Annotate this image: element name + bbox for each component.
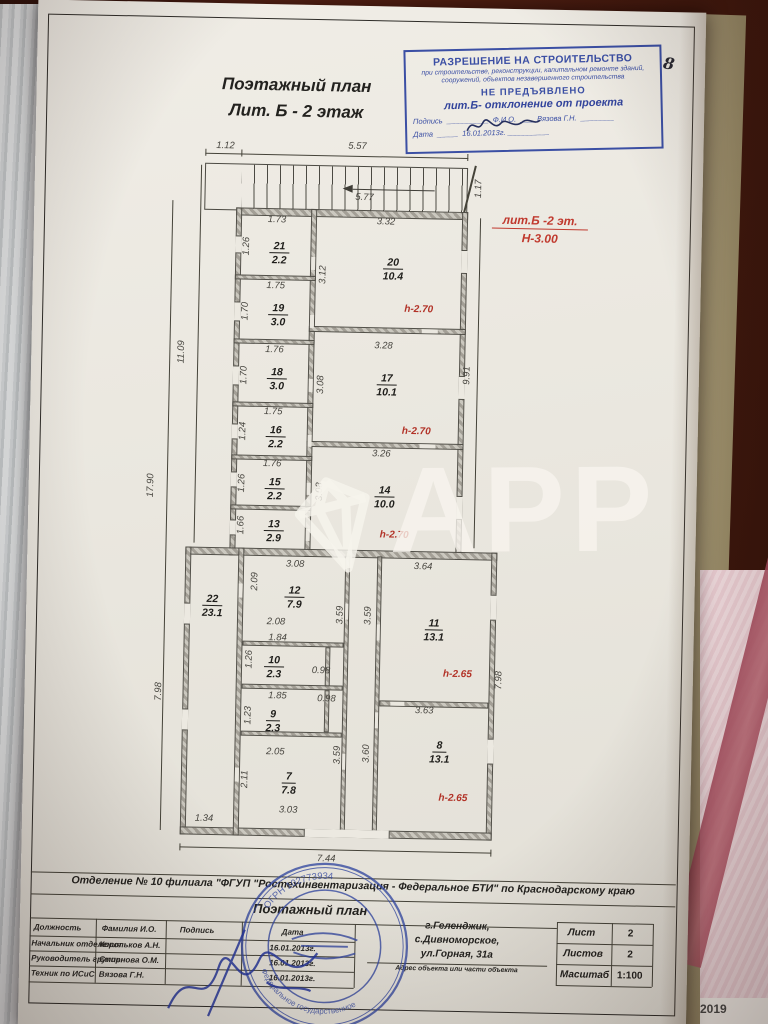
- room-number: 10: [264, 654, 284, 667]
- dim-label: 5.57: [317, 140, 397, 153]
- dim-label: 7.98: [153, 671, 165, 711]
- column-header-position: Должность: [34, 922, 82, 932]
- dim-label: 1.12: [205, 140, 245, 152]
- page-title: Поэтажный план Лит. Б - 2 этаж: [176, 70, 417, 126]
- dim-label: 1.24: [237, 411, 249, 451]
- blank: ________: [579, 113, 615, 123]
- room-area: 3.0: [255, 380, 299, 393]
- sheets-label: Листов: [563, 948, 603, 960]
- litera-height-note: лит.Б -2 эт. Н-3.00: [492, 213, 589, 247]
- room-area: 2.3: [252, 668, 296, 681]
- door-opening: [307, 483, 311, 495]
- room-label-14: 14 10.0: [362, 480, 407, 511]
- dim-label: 3.26: [361, 448, 401, 460]
- dim-label: 11.09: [175, 332, 187, 372]
- scale-label: Масштаб: [560, 969, 609, 981]
- room-number: 18: [267, 366, 287, 379]
- room-height-label: h-2.70: [402, 426, 431, 438]
- stamp-date-label: Дата: [413, 130, 433, 139]
- room-label-8: 8 13.1: [417, 735, 462, 766]
- pink-certificate-page: 2019: [700, 570, 768, 1024]
- door-opening: [422, 329, 438, 333]
- signature-tail: [267, 982, 311, 991]
- room-area: 7.8: [266, 785, 310, 798]
- room-area: 3.0: [256, 316, 300, 329]
- dim-label: 3.32: [366, 216, 406, 228]
- room-area: 10.0: [362, 498, 406, 511]
- dim-label: 1.70: [239, 291, 251, 331]
- handwritten-signature: [148, 920, 340, 1024]
- signature-strokes: [168, 928, 318, 1018]
- dim-label: 1.70: [238, 355, 250, 395]
- door-opening: [310, 315, 314, 328]
- door-opening: [419, 444, 435, 448]
- room-number: 20: [383, 256, 403, 269]
- dim-label: 9.91: [461, 355, 473, 395]
- sheets-value: 2: [627, 949, 633, 960]
- window: [490, 595, 497, 621]
- dim-label: 0.98: [306, 693, 346, 705]
- dim-label: 1.26: [241, 226, 253, 266]
- room-height-label: h-2.65: [443, 669, 472, 681]
- dim-label: 3.08: [275, 558, 315, 570]
- dim-label: 3.59: [331, 735, 343, 775]
- dim-label: 3.59: [334, 595, 346, 635]
- door-opening: [238, 584, 242, 598]
- room-area: 13.1: [412, 631, 456, 644]
- room-number: 11: [424, 617, 443, 630]
- door-opening: [377, 624, 380, 640]
- room-label-9: 9 2.3: [251, 704, 296, 735]
- dim-label: 2.05: [255, 746, 295, 758]
- door-opening: [311, 257, 315, 270]
- room-label-21: 21 2.2: [257, 236, 302, 267]
- room-height-label: h-2.70: [404, 304, 433, 316]
- window: [304, 829, 390, 839]
- window: [487, 739, 494, 765]
- dim-label: 1.34: [184, 812, 224, 824]
- dim-label: 3.08: [315, 365, 327, 405]
- dim-label: 1.73: [257, 214, 297, 226]
- window: [461, 250, 467, 274]
- room-area: 10.1: [364, 386, 408, 399]
- door-opening: [390, 702, 404, 706]
- dim-label: 7.98: [493, 660, 505, 700]
- dim-tick: [467, 154, 468, 161]
- dim-label: 3.08: [314, 472, 326, 512]
- room-number: 14: [375, 484, 395, 497]
- room-label-20: 20 10.4: [371, 252, 416, 283]
- room-label-15: 15 2.2: [252, 472, 297, 503]
- certificate-footer: 2019: [700, 998, 768, 1024]
- dim-label: 17.90: [145, 465, 157, 505]
- window: [182, 708, 188, 730]
- room-height-label: h-2.65: [438, 793, 467, 805]
- room-area: 2.2: [257, 254, 301, 267]
- room-number: 16: [266, 424, 286, 437]
- room-label-10: 10 2.3: [252, 650, 297, 681]
- room-label-11: 11 13.1: [412, 613, 457, 644]
- stamp-signature: [463, 113, 543, 137]
- room-label-22: 22 23.1: [190, 589, 235, 620]
- dim-label: 1.76: [252, 458, 292, 470]
- dim-label: 1.26: [236, 463, 248, 503]
- room-area: 23.1: [190, 607, 234, 620]
- dim-label: 2.08: [256, 616, 296, 628]
- dim-label: 1.85: [257, 690, 297, 702]
- room-area: 13.1: [417, 754, 461, 767]
- room-label-7: 7 7.8: [266, 766, 311, 797]
- dim-label: 3.63: [404, 705, 444, 717]
- room-label-13: 13 2.9: [252, 514, 297, 545]
- row-name: Вязова Г.Н.: [99, 970, 145, 980]
- dim-label: 5.77: [334, 191, 394, 203]
- dim-label: 3.03: [268, 804, 308, 816]
- dim-label: 2.11: [239, 759, 251, 799]
- dim-label: 2.09: [249, 561, 261, 601]
- door-opening: [309, 379, 313, 392]
- room-area: 2.9: [252, 532, 296, 545]
- room-area: 2.2: [253, 438, 297, 451]
- dim-label: 3.64: [403, 561, 443, 573]
- window: [456, 496, 462, 520]
- row-position: Техник по ИСиС: [31, 968, 95, 978]
- dim-tick: [490, 850, 491, 857]
- dim-label: 3.12: [317, 255, 329, 295]
- dim-label: 1.75: [256, 280, 296, 292]
- room-number: 22: [202, 593, 222, 606]
- dim-label: 1.17: [473, 169, 485, 209]
- signature-slash: [208, 929, 245, 1017]
- dim-label: 3.59: [362, 596, 374, 636]
- litera-note-line2: Н-3.00: [492, 231, 588, 247]
- room-label-12: 12 7.9: [272, 580, 317, 611]
- door-opening: [307, 435, 311, 447]
- dim-label: 1.75: [253, 406, 293, 418]
- dim-label: 3.28: [363, 340, 403, 352]
- dim-label: 0.98: [301, 665, 341, 677]
- room-number: 21: [270, 240, 290, 253]
- stamp-sign-label: Подпись: [413, 116, 443, 126]
- scale-value: 1:100: [617, 970, 643, 982]
- litera-note-line1: лит.Б -2 эт.: [492, 213, 588, 231]
- page-title-line2: Лит. Б - 2 этаж: [176, 96, 416, 126]
- photo-of-floor-plan-document: 2019 Поэтажный план Лит. Б - 2 этаж 8 РА…: [0, 0, 768, 1024]
- dim-label: 1.84: [258, 632, 298, 644]
- blank: _____: [435, 129, 460, 139]
- sheet-value: 2: [628, 928, 634, 939]
- room-area: 2.3: [251, 722, 295, 735]
- door-opening: [306, 529, 310, 541]
- column-header-name: Фамилия И.О.: [102, 924, 157, 934]
- signature-stroke: [467, 119, 540, 131]
- document-page: Поэтажный план Лит. Б - 2 этаж 8 РАЗРЕШЕ…: [18, 0, 707, 1024]
- dim-label: 1.76: [254, 344, 294, 356]
- room-label-16: 16 2.2: [253, 420, 298, 451]
- room-label-18: 18 3.0: [255, 362, 300, 393]
- room-number: 19: [268, 302, 288, 315]
- room-area: 2.2: [252, 490, 296, 503]
- room-number: 13: [264, 518, 284, 531]
- certificate-year: 2019: [700, 1002, 727, 1016]
- dim-tick: [179, 843, 180, 850]
- room-number: 15: [265, 476, 285, 489]
- room-area: 7.9: [272, 599, 316, 612]
- room-area: 10.4: [371, 271, 415, 284]
- sheet-label: Лист: [568, 927, 596, 939]
- door-opening: [375, 712, 378, 728]
- room-number: 9: [266, 708, 280, 721]
- dim-label: 3.60: [360, 734, 372, 774]
- room-number: 7: [282, 770, 296, 783]
- room-height-label: h-2.70: [380, 529, 409, 541]
- room-label-17: 17 10.1: [364, 368, 409, 399]
- room-number: 12: [285, 584, 305, 597]
- room-label-19: 19 3.0: [256, 298, 301, 329]
- dim-label: 1.66: [235, 505, 247, 545]
- signature-flourish: [168, 950, 317, 1011]
- room-number: 8: [432, 739, 446, 752]
- room-number: 17: [377, 372, 397, 385]
- construction-permission-stamp: РАЗРЕШЕНИЕ НА СТРОИТЕЛЬСТВО при строител…: [403, 45, 663, 155]
